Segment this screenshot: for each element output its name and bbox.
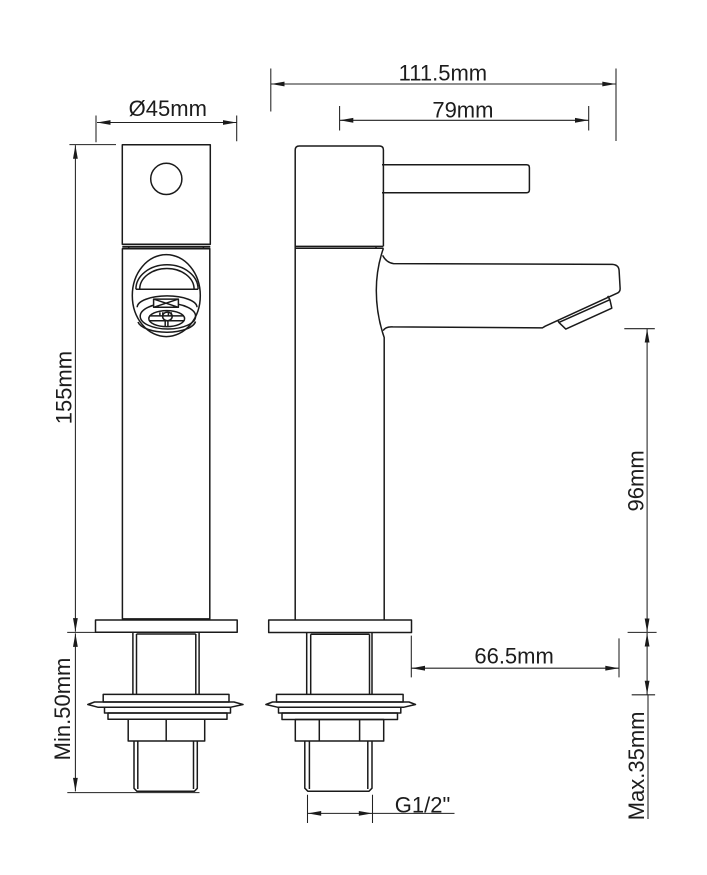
svg-text:96mm: 96mm	[623, 450, 648, 511]
svg-text:Max.35mm: Max.35mm	[624, 712, 649, 821]
svg-text:111.5mm: 111.5mm	[399, 61, 487, 86]
svg-text:155mm: 155mm	[52, 351, 77, 424]
svg-text:79mm: 79mm	[432, 98, 493, 123]
svg-text:G1/2": G1/2"	[395, 793, 451, 818]
svg-text:Min.50mm: Min.50mm	[50, 658, 75, 761]
svg-text:66.5mm: 66.5mm	[474, 643, 553, 668]
svg-text:Ø45mm: Ø45mm	[129, 96, 207, 121]
